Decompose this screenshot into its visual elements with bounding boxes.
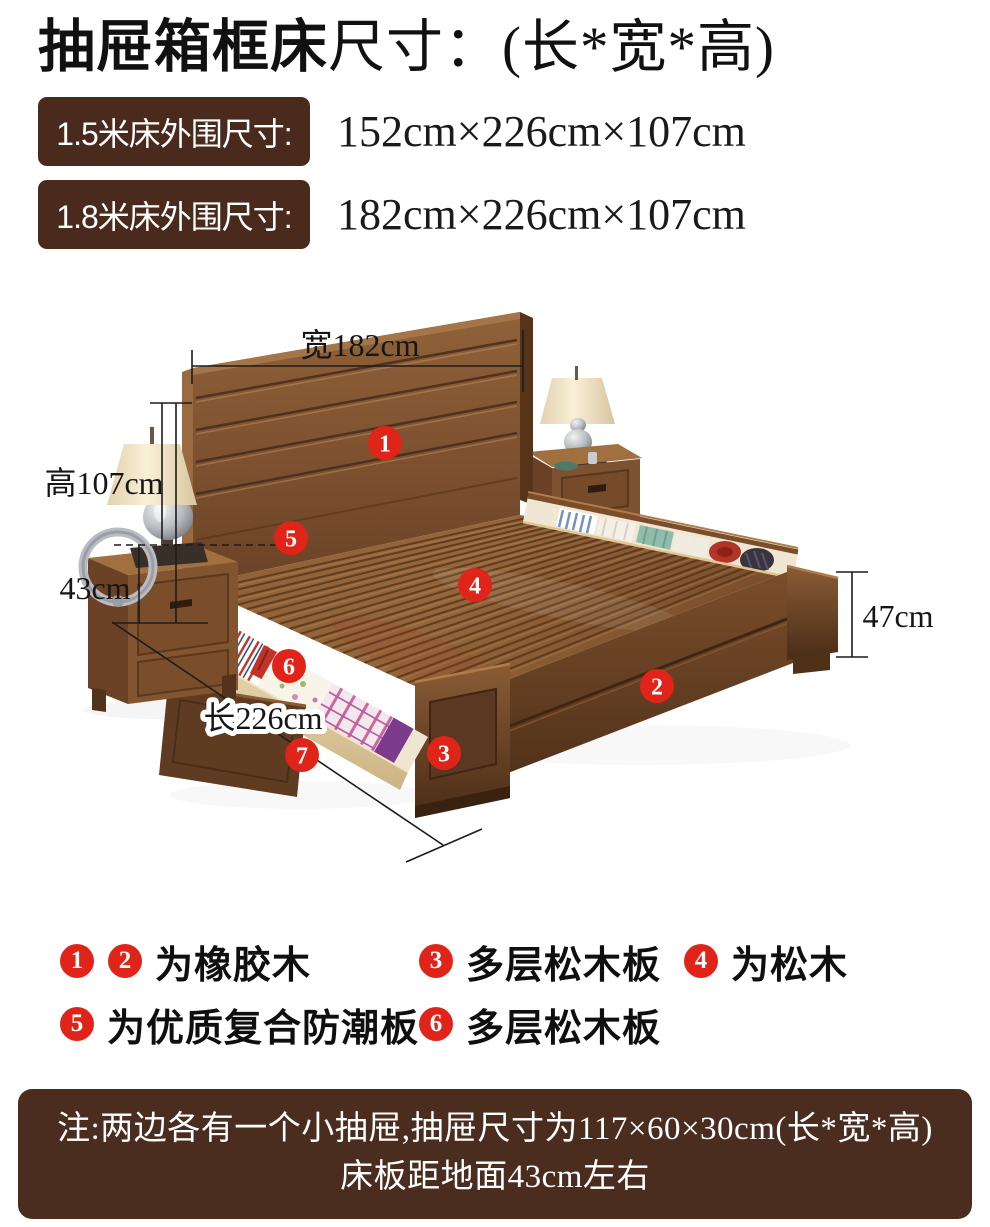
legend-item-moisture-proof-board: 5 为优质复合防潮板 (60, 1003, 419, 1045)
corner-block (415, 664, 510, 818)
callout-badge-5: 5 (274, 521, 308, 555)
product-size-infographic: 抽屉箱框床尺寸：(长*宽*高) 1.5米床外围尺寸: 152cm×226cm×1… (0, 0, 990, 1227)
legend-label-pine: 为松木 (731, 934, 848, 989)
svg-text:2: 2 (651, 675, 663, 701)
note-line-2: 床板距地面43cm左右 (18, 1153, 972, 1201)
note-box: 注:两边各有一个小抽屉,抽屉尺寸为117×60×30cm(长*宽*高) 床板距地… (18, 1089, 972, 1219)
legend-item-pine-board-6: 6 多层松木板 (419, 1003, 661, 1045)
svg-text:6: 6 (283, 655, 295, 681)
legend-label-pine-board-3: 多层松木板 (466, 934, 661, 989)
right-lamp-shade (540, 378, 615, 424)
footboard-height-label: 47cm (862, 598, 933, 634)
size-label-1-5m: 1.5米床外围尺寸: (38, 97, 310, 166)
foot-leg-post (787, 566, 838, 674)
legend-badge-6: 6 (419, 1007, 453, 1041)
height-dimension-label: 高107cm (44, 465, 163, 501)
page-title: 抽屉箱框床尺寸：(长*宽*高) (38, 16, 775, 80)
size-value-1-8m: 182cm×226cm×107cm (337, 180, 757, 249)
svg-text:7: 7 (296, 744, 308, 770)
callout-badge-7: 7 (285, 738, 319, 772)
callout-badge-2: 2 (640, 669, 674, 703)
legend-label-rubber-wood: 为橡胶木 (155, 934, 311, 989)
legend-item-pine-board-3: 3 多层松木板 (419, 940, 661, 982)
left-lamp-finial (150, 427, 154, 444)
size-label-1-8m: 1.8米床外围尺寸: (38, 180, 310, 249)
svg-text:5: 5 (285, 527, 297, 553)
callout-badge-3: 3 (427, 736, 461, 770)
length-dimension-label: 长226cm (203, 700, 322, 736)
legend-badge-5: 5 (60, 1007, 94, 1041)
page-title-main: 抽屉箱框床 (38, 16, 328, 79)
legend-badge-3: 3 (419, 944, 453, 978)
legend-badge-1: 1 (60, 944, 94, 978)
callout-badge-1: 1 (368, 426, 402, 460)
page-title-suffix: 尺寸：(长*宽*高) (328, 16, 775, 79)
legend-badge-2: 2 (108, 944, 142, 978)
platform-height-label: 43cm (59, 570, 130, 606)
width-dimension-label: 宽182cm (300, 327, 419, 363)
svg-text:3: 3 (438, 742, 450, 768)
callout-badge-6: 6 (272, 649, 306, 683)
legend-label-pine-board-6: 多层松木板 (466, 997, 661, 1052)
small-cup (588, 452, 597, 464)
legend-item-rubber-wood: 1 2 为橡胶木 (60, 940, 311, 982)
bed-diagram: 宽182cm 高107cm 43cm 长226cm 47cm 1 2 3 4 5… (0, 300, 990, 930)
teal-dish (554, 462, 578, 471)
note-line-1: 注:两边各有一个小抽屉,抽屉尺寸为117×60×30cm(长*宽*高) (18, 1105, 972, 1153)
size-value-1-5m: 152cm×226cm×107cm (337, 97, 757, 166)
legend-item-pine: 4 为松木 (684, 940, 848, 982)
legend-label-moisture-proof-board: 为优质复合防潮板 (107, 997, 419, 1052)
legend-badge-4: 4 (684, 944, 718, 978)
svg-text:1: 1 (379, 432, 391, 458)
callout-badge-4: 4 (458, 568, 492, 602)
right-lamp-finial (575, 366, 578, 380)
svg-text:4: 4 (469, 574, 481, 600)
